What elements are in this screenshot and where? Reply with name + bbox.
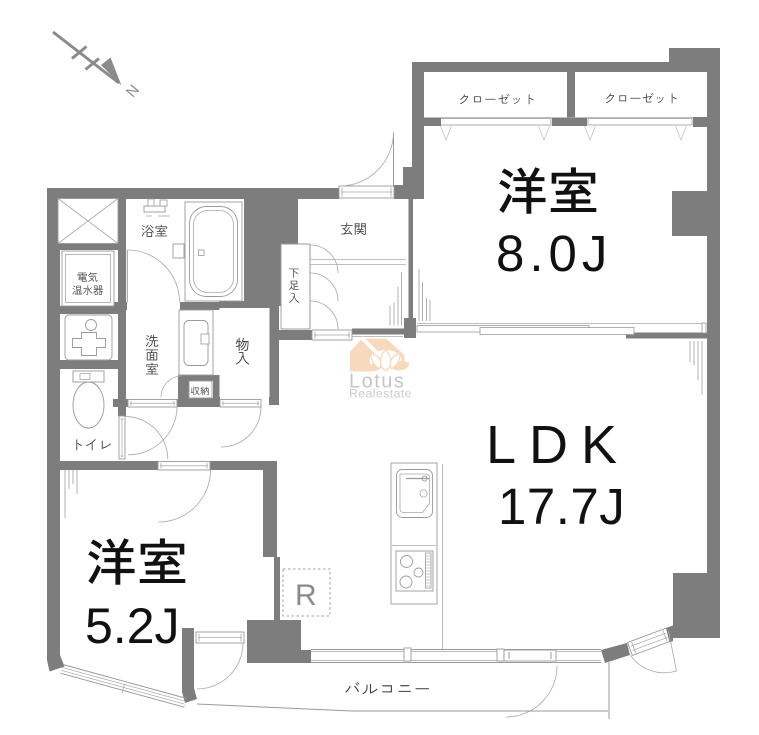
- svg-text:8.0J: 8.0J: [496, 225, 612, 282]
- svg-text:LDK: LDK: [486, 415, 630, 475]
- svg-text:Realestate: Realestate: [349, 387, 412, 401]
- svg-text:17.7J: 17.7J: [498, 478, 625, 535]
- svg-text:R: R: [295, 579, 317, 612]
- svg-text:5.2J: 5.2J: [85, 598, 180, 654]
